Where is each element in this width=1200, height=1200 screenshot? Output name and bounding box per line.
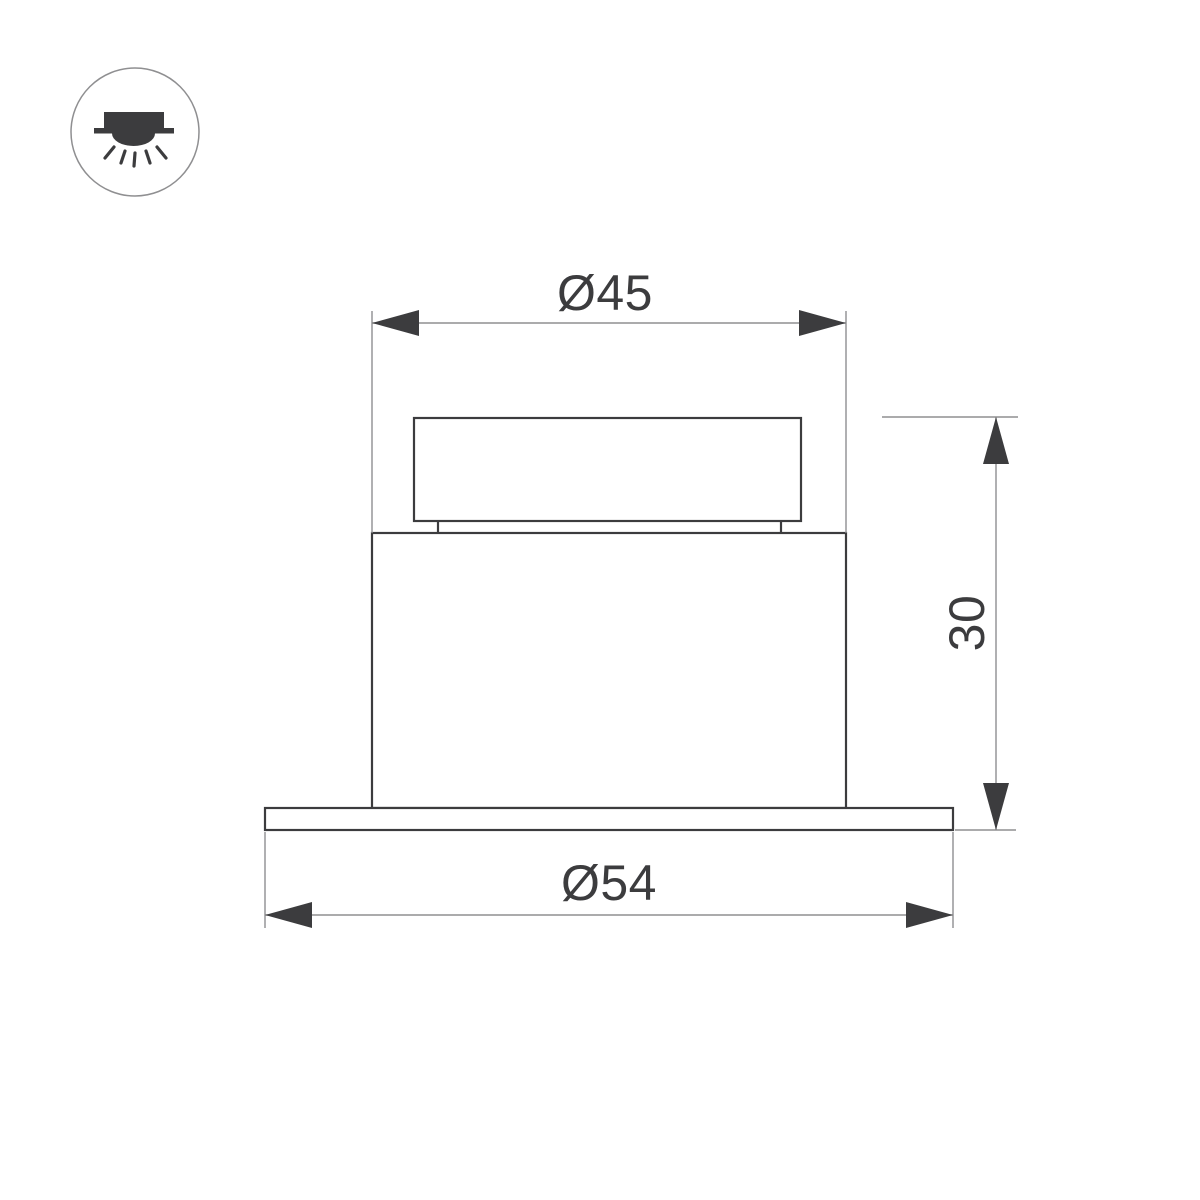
arrowhead-left-icon bbox=[372, 310, 419, 336]
drawing-page: Ø45 30 Ø54 bbox=[0, 0, 1200, 1200]
dimension-drawing: Ø45 30 Ø54 bbox=[0, 0, 1200, 1200]
luminaire-front-view bbox=[265, 418, 953, 830]
arrowhead-down-icon bbox=[983, 783, 1009, 830]
driver-box-outline bbox=[414, 418, 801, 521]
icon-lamp-housing bbox=[104, 112, 164, 130]
dimension-flange-diameter: Ø54 bbox=[265, 832, 953, 928]
dimension-label-flange-diameter: Ø54 bbox=[561, 855, 657, 911]
arrowhead-left-icon bbox=[265, 902, 312, 928]
flange-outline bbox=[265, 808, 953, 830]
dimension-height: 30 bbox=[882, 417, 1018, 830]
body-outline bbox=[372, 533, 846, 808]
arrowhead-right-icon bbox=[906, 902, 953, 928]
arrowhead-right-icon bbox=[799, 310, 846, 336]
dimension-label-body-diameter: Ø45 bbox=[557, 265, 653, 321]
recessed-downlight-icon bbox=[71, 68, 199, 196]
dimension-label-height: 30 bbox=[939, 595, 995, 652]
icon-ceiling-bar bbox=[94, 128, 174, 134]
icon-light-ray bbox=[134, 153, 135, 166]
arrowhead-up-icon bbox=[983, 417, 1009, 464]
